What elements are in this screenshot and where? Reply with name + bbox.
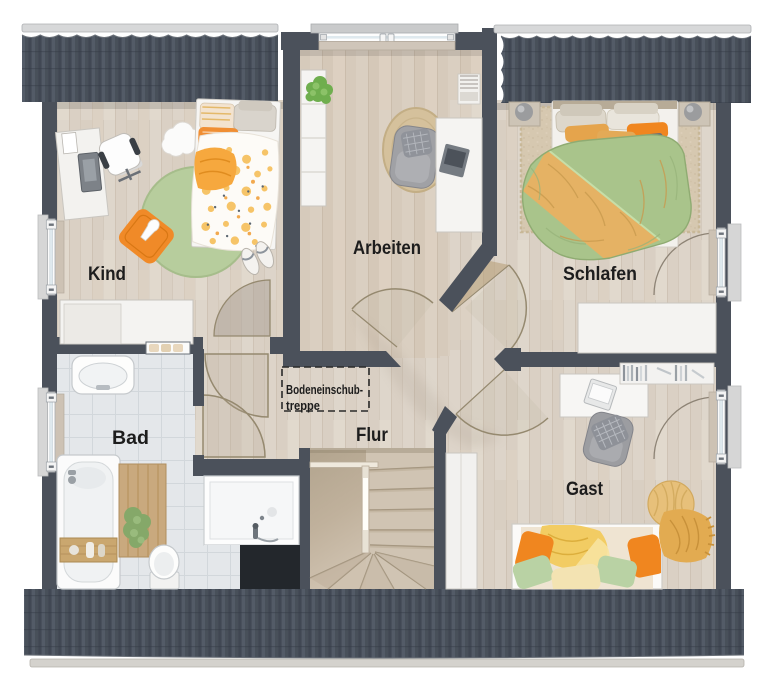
svg-text:Arbeiten: Arbeiten [353,238,421,259]
svg-text:Schlafen: Schlafen [563,264,637,285]
svg-text:treppe: treppe [286,398,320,413]
svg-text:Flur: Flur [356,425,389,446]
svg-text:Bodeneinschub-: Bodeneinschub- [286,382,363,397]
svg-text:Gast: Gast [566,479,604,500]
svg-text:Kind: Kind [88,264,126,285]
svg-text:Bad: Bad [112,428,149,449]
